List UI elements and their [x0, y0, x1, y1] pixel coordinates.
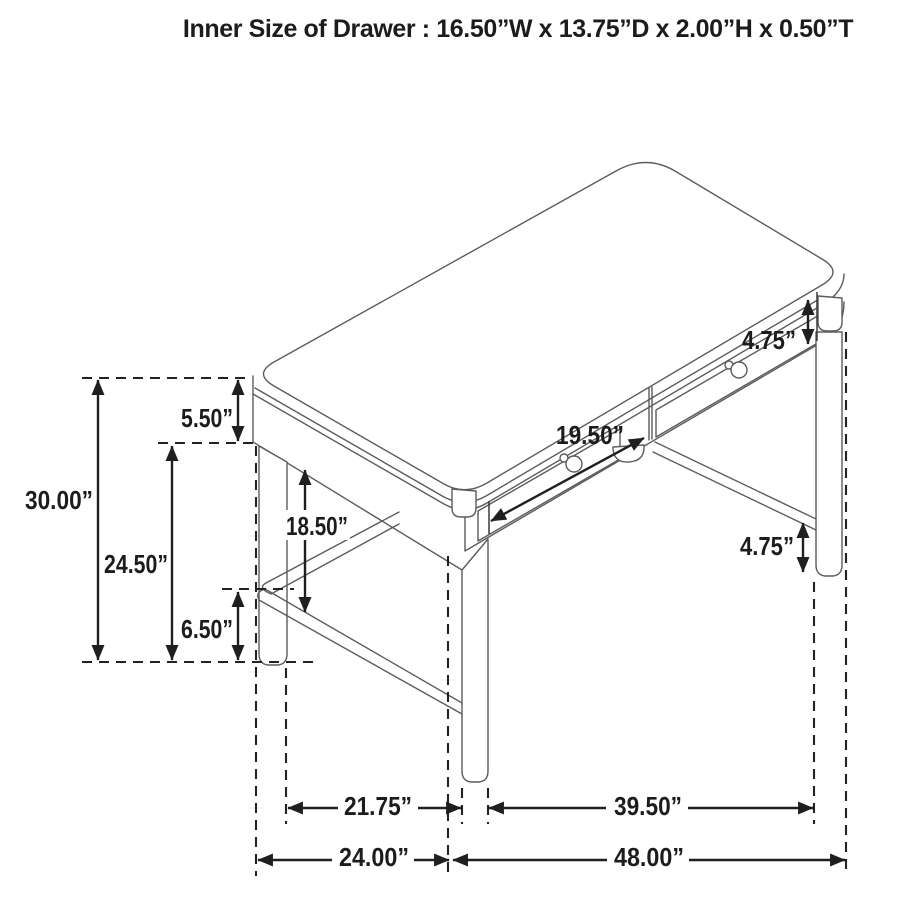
desk-artwork: [253, 163, 844, 783]
back-left-leg: [259, 446, 287, 665]
overall-depth-label: 24.00”: [339, 842, 409, 872]
drawer-front-width-label: 19.50”: [556, 420, 624, 450]
leg-below-stretcher-label: 4.75”: [740, 531, 794, 561]
front-right-corner-cap: [818, 296, 842, 331]
side-leg-span-label: 21.75”: [344, 791, 412, 821]
desk-line-drawing: 30.00” 5.50” 24.50” 6.50” 18.50” 19.50” …: [0, 0, 900, 900]
front-leg-span-label: 39.50”: [614, 791, 682, 821]
front-apron-height-label: 4.75”: [742, 325, 796, 355]
desk-dimension-diagram: Inner Size of Drawer : 16.50”W x 13.75”D…: [0, 0, 900, 900]
front-left-corner-cap: [452, 489, 476, 517]
overall-height-label: 30.00”: [25, 485, 93, 515]
front-right-leg: [816, 332, 842, 576]
leg-clear-height-label: 18.50”: [286, 511, 348, 541]
stretcher-height-label: 6.50”: [181, 614, 233, 644]
right-stretcher: [653, 442, 816, 530]
left-stretcher: [258, 589, 462, 714]
front-left-leg: [462, 539, 488, 782]
floor-to-side-apron-label: 24.50”: [104, 549, 168, 579]
overall-width-label: 48.00”: [614, 842, 684, 872]
right-drawer-knob: [725, 361, 747, 378]
drawer-divider: [649, 387, 652, 440]
left-drawer-knob: [560, 454, 582, 472]
side-apron-height-label: 5.50”: [181, 403, 233, 433]
